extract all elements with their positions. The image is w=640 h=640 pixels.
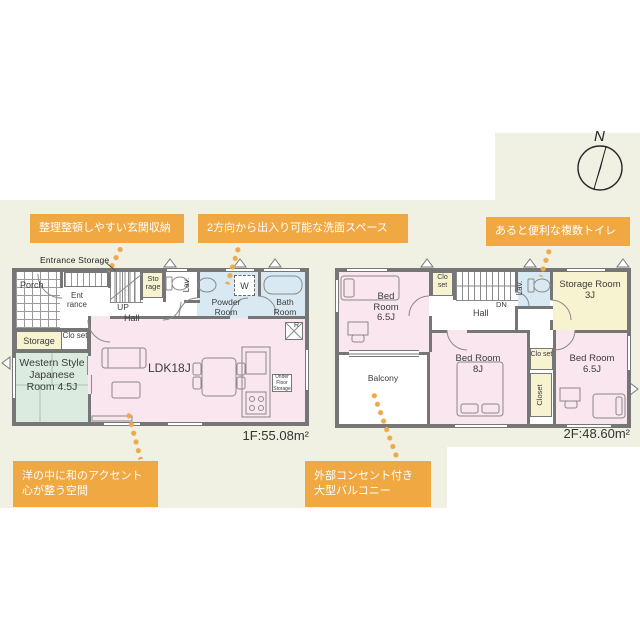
entrance-storage-note: Entrance Storage [40, 256, 109, 266]
window [12, 358, 16, 398]
wall [550, 320, 553, 330]
balcony-label: Balcony [361, 374, 405, 384]
window [264, 268, 300, 272]
window [567, 424, 611, 428]
compass-north-icon: N [574, 122, 626, 196]
hall-label: Hall [124, 313, 140, 323]
floor1-area-label: 1F:55.08m² [235, 429, 309, 444]
vent-triangle-icon [616, 258, 630, 268]
stairs-up [110, 272, 142, 302]
entrance-label: Ent rance [64, 292, 90, 310]
porch-label: Porch [20, 280, 44, 290]
bedroom-s [430, 330, 527, 424]
callout-balcony-line1: 外部コンセント付き [314, 469, 413, 484]
wall [453, 272, 456, 300]
vent-triangle-icon [420, 258, 434, 268]
bedroom-nw-label: Bed Room 6.5J [365, 292, 407, 324]
japanese-room-label: Western Style Japanese Room 4.5J [18, 358, 86, 393]
window [305, 350, 309, 390]
sliding-door [91, 375, 92, 394]
ldk-room [88, 316, 305, 422]
window [567, 268, 605, 272]
callout-balcony-line2: 大型バルコニー [314, 484, 391, 499]
wall [16, 350, 88, 353]
callout-powder-room: 2方向から出入り可能な洗面スペース [198, 214, 408, 243]
vent-triangle-icon [523, 258, 537, 268]
storage-top-label: Sto rage [142, 275, 164, 292]
closet-top-label: Clo set [432, 274, 453, 290]
window [168, 422, 202, 426]
bath-room-label: Bath Room [266, 298, 304, 317]
up-label: UP [114, 303, 132, 313]
callout-japanese-room: 洋の中に和のアクセント 心が整う空間 [13, 461, 158, 507]
callout-japanese-room-line2: 心が整う空間 [22, 484, 88, 499]
vent-triangle-icon-left [1, 356, 11, 370]
stair-edge [456, 300, 518, 301]
window [335, 280, 339, 312]
wall [197, 272, 200, 298]
sliding-door [87, 356, 88, 375]
window [627, 336, 631, 370]
ldk-label: LDK18J [148, 362, 191, 375]
bedroom-se-label: Bed Room 6.5J [567, 354, 617, 375]
washing-machine-box: W [234, 275, 255, 296]
under-floor-storage-box: Under Floor Storage [272, 374, 292, 392]
vent-triangle-icon [268, 258, 282, 268]
bedroom-s-label: Bed Room 8J [453, 354, 503, 375]
stairs-down [456, 272, 515, 300]
closet-label: Clo set [62, 332, 88, 341]
entrance-storage-cabinet [64, 272, 108, 287]
window [455, 424, 507, 428]
under-floor-storage-label: Under Floor Storage [273, 374, 291, 392]
washer-label: W [240, 281, 249, 291]
wall [430, 330, 447, 333]
callout-entrance-storage: 整理整頓しやすい玄関収納 [30, 214, 184, 243]
wall [429, 316, 432, 352]
closet-mid-label: Clo set [530, 351, 553, 359]
hall-2f-label: Hall [473, 308, 489, 318]
wall [515, 306, 518, 330]
storage-bottom-label: Storage [18, 336, 60, 346]
window [347, 268, 387, 272]
wall [550, 272, 553, 300]
wall [467, 330, 527, 333]
wall [553, 330, 556, 424]
callout-balcony: 外部コンセント付き 大型バルコニー [305, 461, 431, 507]
callout-toilets-text: あると便利な複数トイレ [495, 224, 616, 239]
wall [575, 330, 627, 333]
lav-2f-label: Lav. [516, 268, 526, 308]
closet-vertical-label: Closet [536, 375, 546, 415]
wall [108, 272, 111, 288]
storage-room-label: Storage Room 3J [559, 280, 621, 301]
wall [427, 352, 430, 424]
floor2-area-label: 2F:48.60m² [556, 427, 630, 442]
floor-plan-page: N 整理整頓しやすい玄関収納 2方向から出入り可能な洗面スペース あると便利な複… [0, 0, 640, 640]
callout-entrance-storage-text: 整理整頓しやすい玄関収納 [39, 221, 171, 236]
callout-japanese-room-line1: 洋の中に和のアクセント [22, 469, 142, 484]
wall [60, 272, 63, 288]
callout-toilets: あると便利な複数トイレ [486, 217, 630, 246]
bedroom-se [556, 330, 627, 424]
powder-room-label: Powder Room [200, 298, 252, 317]
compass-n-label: N [594, 128, 605, 145]
floor1-plan: W Under Floor Storage [12, 268, 309, 426]
refrigerator-label: R [294, 322, 299, 330]
lav-label: Lav. [183, 265, 193, 305]
wall [88, 316, 91, 356]
callout-powder-room-text: 2方向から出入り可能な洗面スペース [207, 221, 388, 236]
balcony-sliding-door [349, 350, 419, 357]
wall [258, 272, 261, 296]
dn-label: DN [496, 301, 507, 309]
vent-triangle-icon [163, 258, 177, 268]
wall [527, 330, 530, 424]
wall [88, 394, 91, 422]
